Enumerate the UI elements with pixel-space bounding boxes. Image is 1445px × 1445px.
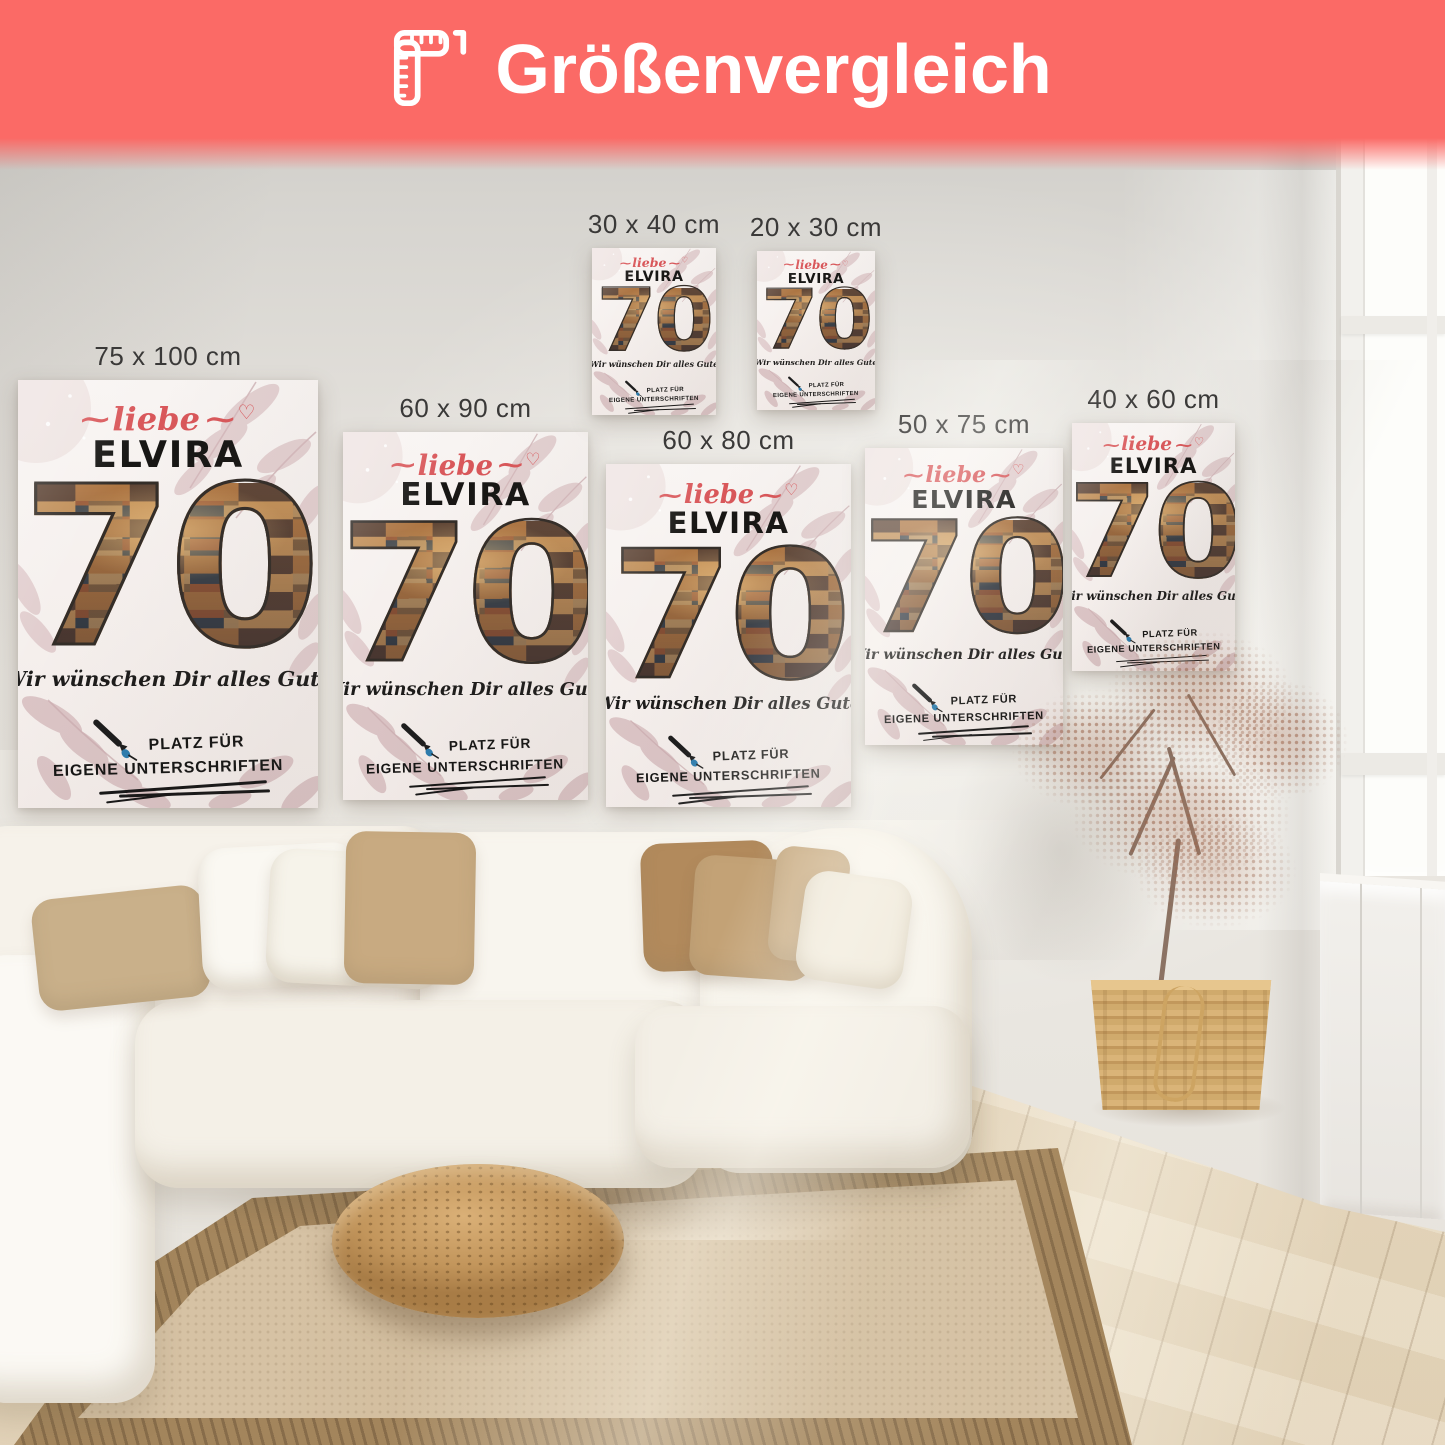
flourish: ⁓ bbox=[903, 465, 921, 485]
signature-line1: PLATZ FÜR bbox=[148, 733, 244, 754]
poster-size-label: 75 x 100 cm bbox=[94, 341, 241, 372]
fountain-pen-icon bbox=[400, 722, 439, 761]
flourish: ⁓ bbox=[81, 405, 107, 434]
throw-pillow bbox=[30, 883, 213, 1012]
poster-greeting: ⁓ liebe ⁓ ♡ bbox=[903, 464, 1024, 486]
poster-photo-number: 70 bbox=[865, 520, 1063, 640]
throw-pillow bbox=[793, 868, 915, 992]
flourish: ⁓ bbox=[390, 453, 412, 478]
poster-canvas: ⁓ liebe ⁓ ♡ ELVIRA 70 Wir wünschen Dir a… bbox=[606, 464, 851, 807]
size-comparison-banner: Größenvergleich bbox=[0, 0, 1445, 138]
greeting-word: liebe bbox=[684, 483, 754, 509]
poster-message: Wir wünschen Dir alles Gute bbox=[18, 667, 318, 692]
signature-line2: EIGENE UNTERSCHRIFTEN bbox=[53, 757, 284, 781]
flourish: ⁓ bbox=[830, 260, 840, 271]
flourish: ⁓ bbox=[784, 260, 794, 271]
flourish: ⁓ bbox=[620, 258, 630, 269]
poster-canvas: ⁓ liebe ⁓ ♡ ELVIRA 70 Wir wünschen Dir a… bbox=[757, 251, 875, 410]
poster-size-label: 60 x 90 cm bbox=[399, 393, 531, 424]
greeting-word: liebe bbox=[632, 257, 666, 270]
poster-photo-number: 70 bbox=[21, 483, 315, 655]
size-comparison-mockup: 75 x 100 cm bbox=[0, 0, 1445, 1445]
heart-icon: ♡ bbox=[681, 257, 688, 265]
signature-row: PLATZ FÜR bbox=[667, 726, 789, 765]
poster-greeting: ⁓ liebe ⁓ ♡ bbox=[81, 403, 256, 435]
poster-size-label: 20 x 30 cm bbox=[750, 212, 882, 243]
poster: 60 x 80 cm bbox=[606, 464, 851, 807]
poster-size-label: 50 x 75 cm bbox=[898, 409, 1030, 440]
scribble-underline bbox=[789, 401, 855, 406]
scribble-underline bbox=[409, 781, 546, 792]
signature-line1: PLATZ FÜR bbox=[646, 386, 684, 394]
signature-line2: EIGENE UNTERSCHRIFTEN bbox=[773, 391, 859, 399]
fountain-pen-icon bbox=[92, 717, 137, 762]
sofa-seat-cushion bbox=[135, 1000, 705, 1188]
banner-title: Größenvergleich bbox=[495, 29, 1051, 109]
flourish: ⁓ bbox=[1103, 437, 1118, 454]
poster: 60 x 90 cm bbox=[343, 432, 588, 800]
poster: 75 x 100 cm bbox=[18, 380, 318, 808]
signature-line2: EIGENE UNTERSCHRIFTEN bbox=[636, 766, 821, 786]
signature-row: PLATZ FÜR bbox=[788, 372, 845, 390]
poster-greeting: ⁓ liebe ⁓ ♡ bbox=[390, 452, 540, 480]
poster-photo-number: 70 bbox=[1072, 483, 1235, 583]
throw-pillow bbox=[344, 831, 477, 985]
scribble-stroke bbox=[792, 404, 821, 408]
fountain-pen-icon bbox=[668, 734, 704, 770]
sofa-chaise bbox=[0, 955, 155, 1403]
signature-row: PLATZ FÜR bbox=[624, 376, 683, 395]
heart-icon: ♡ bbox=[238, 403, 256, 423]
flourish: ⁓ bbox=[658, 484, 679, 507]
heart-icon: ♡ bbox=[842, 260, 849, 267]
signature-row: PLATZ FÜR bbox=[92, 707, 244, 756]
signature-row: PLATZ FÜR bbox=[400, 713, 531, 755]
poster-greeting: ⁓ liebe ⁓ ♡ bbox=[620, 257, 688, 270]
poster-greeting: ⁓ liebe ⁓ ♡ bbox=[784, 260, 849, 272]
poster-canvas: ⁓ liebe ⁓ ♡ ELVIRA 70 Wir wünschen Dir a… bbox=[592, 248, 716, 415]
poster-canvas: ⁓ liebe ⁓ ♡ ELVIRA 70 Wir wünschen Dir a… bbox=[343, 432, 588, 800]
signature-line1: PLATZ FÜR bbox=[448, 736, 531, 754]
scribble-underline bbox=[625, 406, 694, 411]
poster-photo-number: 70 bbox=[761, 289, 870, 353]
flourish: ⁓ bbox=[990, 465, 1008, 485]
poster-size-label: 40 x 60 cm bbox=[1087, 384, 1219, 415]
heart-icon: ♡ bbox=[784, 483, 798, 499]
poster-message: Wir wünschen Dir alles Gute bbox=[757, 358, 875, 367]
poster-size-label: 30 x 40 cm bbox=[588, 209, 720, 240]
greeting-word: liebe bbox=[418, 452, 493, 480]
poster-message: Wir wünschen Dir alles Gute bbox=[1072, 589, 1235, 603]
flourish: ⁓ bbox=[669, 258, 679, 269]
fountain-pen-icon bbox=[788, 376, 805, 393]
poster-message: Wir wünschen Dir alles Gute bbox=[606, 694, 851, 714]
greeting-word: liebe bbox=[925, 464, 986, 486]
greeting-word: liebe bbox=[795, 260, 828, 272]
poster-message: Wir wünschen Dir alles Gute bbox=[592, 360, 716, 370]
signature-line2: EIGENE UNTERSCHRIFTEN bbox=[609, 395, 699, 404]
poster-message: Wir wünschen Dir alles Gute bbox=[865, 647, 1063, 664]
fountain-pen-icon bbox=[624, 380, 642, 398]
dried-plant-foliage bbox=[1110, 795, 1320, 945]
scribble-underline bbox=[672, 790, 809, 801]
flourish: ⁓ bbox=[498, 453, 520, 478]
poster: 20 x 30 cm bbox=[757, 251, 875, 410]
poster-size-label: 60 x 80 cm bbox=[662, 425, 794, 456]
wicker-pouf bbox=[332, 1164, 624, 1318]
scribble-underline bbox=[99, 786, 267, 799]
poster-message: Wir wünschen Dir alles Gute bbox=[343, 679, 588, 700]
greeting-word: liebe bbox=[112, 403, 200, 435]
signature-line1: PLATZ FÜR bbox=[712, 746, 789, 764]
flourish: ⁓ bbox=[759, 484, 780, 507]
poster-photo-number: 70 bbox=[611, 547, 847, 685]
fountain-pen-icon bbox=[911, 682, 942, 713]
poster-canvas: ⁓ liebe ⁓ ♡ ELVIRA 70 Wir wünschen Dir a… bbox=[18, 380, 318, 808]
flourish: ⁓ bbox=[206, 405, 232, 434]
ruler-icon bbox=[393, 29, 469, 109]
flourish: ⁓ bbox=[1175, 437, 1190, 454]
poster-photo-number: 70 bbox=[343, 521, 588, 669]
sofa-seat-cushion bbox=[635, 1006, 970, 1168]
poster-greeting: ⁓ liebe ⁓ ♡ bbox=[658, 483, 798, 509]
poster-photo-number: 70 bbox=[597, 288, 712, 355]
heart-icon: ♡ bbox=[1194, 436, 1204, 448]
poster: 30 x 40 cm bbox=[592, 248, 716, 415]
heart-icon: ♡ bbox=[1012, 464, 1024, 478]
heart-icon: ♡ bbox=[525, 452, 540, 469]
signature-line2: EIGENE UNTERSCHRIFTEN bbox=[366, 756, 564, 776]
signature-line1: PLATZ FÜR bbox=[809, 383, 845, 390]
